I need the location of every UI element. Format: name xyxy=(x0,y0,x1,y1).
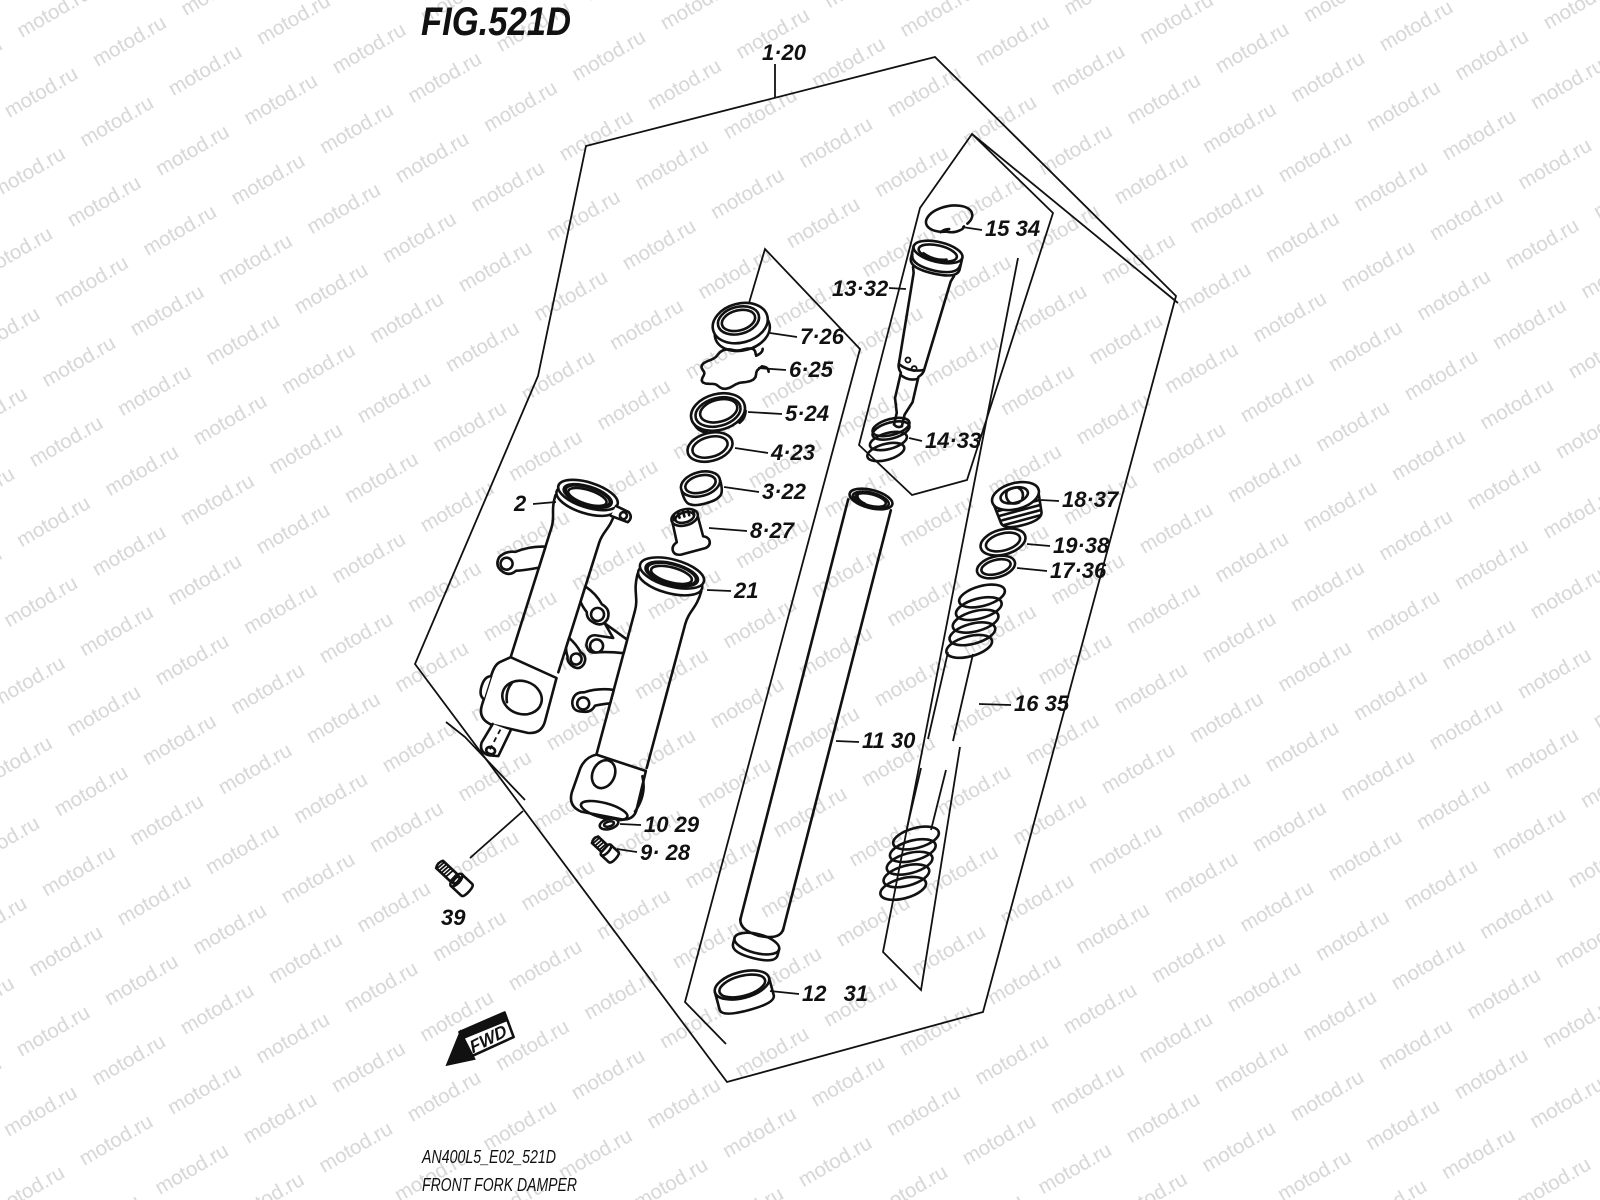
svg-text:6·25: 6·25 xyxy=(789,357,834,382)
svg-text:17·36: 17·36 xyxy=(1050,558,1107,583)
svg-text:5·24: 5·24 xyxy=(785,401,829,426)
svg-text:18·37: 18·37 xyxy=(1062,487,1120,512)
svg-text:15 34: 15 34 xyxy=(985,216,1040,241)
svg-text:2: 2 xyxy=(513,491,527,516)
svg-text:FRONT FORK DAMPER: FRONT FORK DAMPER xyxy=(422,1175,577,1195)
svg-text:3·22: 3·22 xyxy=(762,479,807,504)
svg-text:11 30: 11 30 xyxy=(862,728,916,753)
svg-text:13·32: 13·32 xyxy=(832,276,889,301)
svg-text:8·27: 8·27 xyxy=(750,518,796,543)
svg-text:AN400L5_E02_521D: AN400L5_E02_521D xyxy=(421,1147,556,1167)
svg-text:4·23: 4·23 xyxy=(770,440,815,465)
svg-text:7·26: 7·26 xyxy=(800,324,845,349)
svg-text:21: 21 xyxy=(733,578,758,603)
svg-text:9· 28: 9· 28 xyxy=(640,840,691,865)
svg-text:39: 39 xyxy=(441,905,466,930)
svg-text:14·33: 14·33 xyxy=(925,428,981,453)
svg-text:1·20: 1·20 xyxy=(762,40,807,65)
svg-text:FIG.521D: FIG.521D xyxy=(421,0,571,44)
svg-text:10 29: 10 29 xyxy=(644,812,700,837)
svg-text:19·38: 19·38 xyxy=(1053,533,1110,558)
svg-text:16 35: 16 35 xyxy=(1014,691,1070,716)
svg-text:12 31: 12 31 xyxy=(802,981,868,1006)
